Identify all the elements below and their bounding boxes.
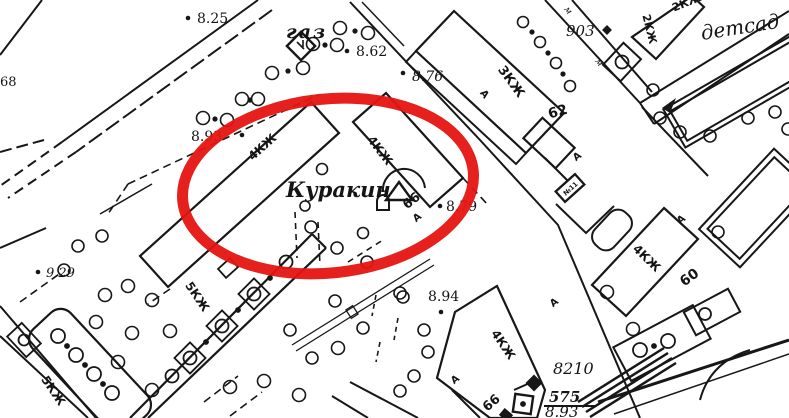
building-right-tall-outer <box>699 149 789 268</box>
yard-dash-3 <box>372 295 376 316</box>
elevation-dot <box>186 16 191 21</box>
tree-dot <box>546 51 550 55</box>
block-dot <box>652 344 656 348</box>
tree-dot <box>286 69 290 73</box>
building-number-label: 66 <box>400 190 423 213</box>
tree-icon <box>357 322 369 334</box>
elevation-dot <box>438 204 443 209</box>
elevation-label: 8.62 <box>356 44 387 60</box>
tree-icon <box>99 289 112 302</box>
tree-icon <box>334 22 347 35</box>
tree-icon <box>252 93 265 106</box>
elevation-dot <box>439 310 444 315</box>
tree-icon <box>332 342 345 355</box>
gas-road-dash-2 <box>8 152 76 198</box>
tree-icon <box>535 37 546 48</box>
tree-icon <box>601 286 614 299</box>
building-number-label: 66 <box>480 392 504 415</box>
porch-dot <box>236 308 240 312</box>
utility-box: №11 <box>556 174 585 202</box>
tree-icon <box>90 316 103 329</box>
block-circle <box>661 334 675 348</box>
courtyard-dash-3 <box>348 240 383 262</box>
elevation-dot <box>240 133 245 138</box>
tree-icon <box>358 228 369 239</box>
tree-dot <box>213 117 217 121</box>
yard-dash-2 <box>204 376 238 402</box>
yard-dash-5 <box>376 342 380 362</box>
letter-m-label: м <box>561 5 573 17</box>
porch-dot <box>65 344 69 348</box>
tree-icon <box>236 93 249 106</box>
tree-icon <box>397 291 409 303</box>
elevation-label: 8.76 <box>412 69 443 85</box>
geodetic-point-label: Куракин <box>285 177 391 202</box>
bottom-street-stub <box>452 390 480 418</box>
building-type-label: 5КЖ <box>182 279 212 314</box>
tree-icon <box>164 325 177 338</box>
tree-icon <box>284 324 296 336</box>
yard-dash <box>230 392 262 416</box>
elevation-label: 8.94 <box>428 289 459 305</box>
building-type-label: 5КЖ <box>38 373 68 408</box>
tree-icon <box>331 242 343 254</box>
right-street <box>642 107 708 176</box>
tree-icon <box>197 112 210 125</box>
elevation-dot <box>36 270 41 275</box>
topographic-map: 8.25 газ 8.62 8.76 68 8.93 4КЖ 4КЖ Курак… <box>0 0 789 418</box>
porch-dot <box>268 276 272 280</box>
benchmark-blob <box>500 409 513 418</box>
tree-icon <box>627 323 640 336</box>
kindergarten-label: детсад <box>699 9 781 45</box>
tree-icon <box>712 226 724 238</box>
street-903-edge <box>545 0 640 103</box>
tree-icon <box>300 201 310 211</box>
point-903-dot <box>603 26 611 34</box>
porch-circle <box>105 386 119 400</box>
tree-icon <box>317 164 328 175</box>
point-number-label: 903 <box>566 22 595 40</box>
building-number-label: 60 <box>677 265 702 290</box>
left-road-stub <box>0 140 44 152</box>
tree-icon <box>266 67 279 80</box>
letter-a-label: А <box>411 211 424 225</box>
porch-dot <box>101 382 105 386</box>
left-road-stub-2 <box>0 228 46 248</box>
gas-road-edge <box>62 0 258 142</box>
tree-icon <box>126 327 139 340</box>
map-canvas: 8.25 газ 8.62 8.76 68 8.93 4КЖ 4КЖ Курак… <box>0 0 789 418</box>
benchmark-dot <box>521 402 526 407</box>
point-number-label: 8210 <box>553 359 594 378</box>
tree-icon <box>305 221 317 233</box>
tree-icon <box>297 62 310 75</box>
building-type-label: 4КЖ <box>630 242 664 275</box>
block-southeast-2 <box>684 289 740 335</box>
tree-dot <box>248 98 252 102</box>
tree-icon <box>72 240 84 252</box>
letter-a-label: А <box>675 213 688 227</box>
porch-circle <box>87 367 101 381</box>
symbols <box>287 26 676 418</box>
porch-dot <box>83 363 87 367</box>
corner-band <box>0 306 96 418</box>
building-detsad-outer <box>663 24 789 147</box>
tree-dot <box>353 29 357 33</box>
elevation-dot <box>345 49 350 54</box>
tree-icon <box>782 123 789 135</box>
block-circle <box>633 343 647 357</box>
tree-icon <box>306 352 318 364</box>
bottom-right-curve <box>700 350 750 400</box>
edge-elevation-label: 68 <box>0 75 17 90</box>
tree-icon <box>769 106 781 118</box>
building-number-label: 62 <box>546 102 569 123</box>
tree-icon <box>293 389 306 402</box>
street-903-edge-2 <box>572 0 652 92</box>
tree-icon <box>518 17 529 28</box>
tree-icon <box>258 375 271 388</box>
letter-a-label: А <box>449 373 462 387</box>
tree-icon <box>394 385 406 397</box>
tree-icon <box>112 356 125 369</box>
tree-icon <box>146 294 159 307</box>
tree-icon <box>551 58 562 69</box>
letter-a-label: А <box>571 150 584 164</box>
tree-icon <box>96 230 108 242</box>
tree-icon <box>422 346 434 358</box>
tree-icon <box>329 295 341 307</box>
building-2kzh-annex <box>603 43 641 81</box>
elevation-label: 8.25 <box>197 11 228 27</box>
letter-a-label: А <box>548 296 561 310</box>
porch-circle <box>51 329 65 343</box>
building-type-label: 3КЖ <box>494 63 527 101</box>
tree-icon <box>565 81 576 92</box>
tree-icon <box>418 324 430 336</box>
tree-dot <box>530 30 534 34</box>
tree-icon <box>331 39 344 52</box>
left-edge-road <box>0 0 42 55</box>
elevation-label: 9.29 <box>46 266 75 281</box>
courtyard-dash-2 <box>318 222 320 266</box>
elevation-dot <box>401 71 406 76</box>
letter-a-label: А <box>477 88 491 101</box>
tree-dot <box>323 43 327 47</box>
block-circle <box>699 308 711 320</box>
tree-icon <box>122 280 135 293</box>
building-4kzh-east-wing <box>587 205 636 255</box>
tree-icon <box>394 287 406 299</box>
porch-circle <box>69 348 83 362</box>
gas-label: газ <box>286 21 327 43</box>
tree-dot <box>561 72 565 76</box>
building-type-label: 4КЖ <box>488 327 518 362</box>
letter-m-label: м <box>592 57 604 69</box>
mid-left-fence <box>100 184 152 214</box>
tree-icon <box>362 27 375 40</box>
tree-icon <box>742 112 754 124</box>
gas-road-edge-2 <box>76 10 272 152</box>
band-south <box>332 396 368 418</box>
yard-dash-4 <box>394 318 398 340</box>
porch-dot <box>204 340 208 344</box>
tree-icon <box>408 370 420 382</box>
